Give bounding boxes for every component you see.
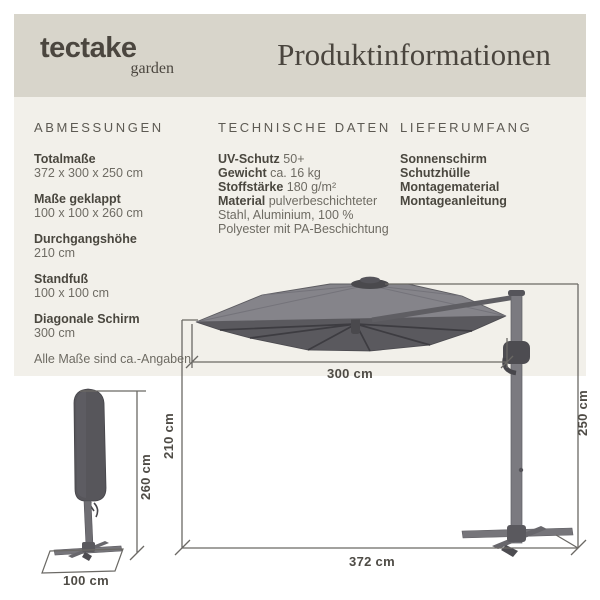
umbrella-base — [462, 525, 573, 557]
spec-value: 180 g/m² — [287, 180, 336, 194]
brand-logo: tectake garden — [40, 34, 174, 77]
spec-line: Material pulverbeschichteter Stahl, Alum… — [218, 194, 398, 236]
column-abmessungen: ABMESSUNGEN Totalmaße 372 x 300 x 250 cm… — [34, 121, 204, 366]
dimension-item: Durchgangshöhe 210 cm — [34, 232, 204, 260]
abmessungen-title: ABMESSUNGEN — [34, 121, 204, 135]
dimension-base-width: 100 cm — [63, 573, 109, 588]
technische-daten-title: TECHNISCHE DATEN — [218, 121, 398, 135]
pack-item: Sonnenschirm — [400, 152, 570, 166]
spec-line: UV-Schutz 50+ — [218, 152, 398, 166]
base-footprint-outline — [42, 549, 123, 573]
item-label: Maße geklappt — [34, 192, 204, 206]
lieferumfang-title: LIEFERUMFANG — [400, 121, 570, 135]
item-value: 100 x 100 x 260 cm — [34, 206, 204, 220]
item-label: Totalmaße — [34, 152, 204, 166]
spec-label: Stoffstärke — [218, 180, 283, 194]
item-value: 372 x 300 x 250 cm — [34, 166, 204, 180]
dimension-item: Maße geklappt 100 x 100 x 260 cm — [34, 192, 204, 220]
item-value: 100 x 100 cm — [34, 286, 204, 300]
dimension-total-width: 372 cm — [349, 554, 395, 569]
spec-label: Gewicht — [218, 166, 267, 180]
page-title: Produktinformationen — [239, 38, 589, 72]
product-info-page: tectake garden Produktinformationen — [0, 0, 600, 600]
header-band: tectake garden Produktinformationen — [14, 14, 586, 97]
item-label: Standfuß — [34, 272, 204, 286]
item-value: 210 cm — [34, 246, 204, 260]
dimension-item: Diagonale Schirm 300 cm — [34, 312, 204, 340]
dimension-item: Totalmaße 372 x 300 x 250 cm — [34, 152, 204, 180]
spec-line: Gewicht ca. 16 kg — [218, 166, 398, 180]
pack-item: Montageanleitung — [400, 194, 570, 208]
pack-item: Montagematerial — [400, 180, 570, 194]
dimension-folded-height: 260 cm — [138, 454, 153, 500]
spec-value: ca. 16 kg — [270, 166, 321, 180]
dimension-passage-height: 210 cm — [161, 413, 176, 459]
brand-name: tectake — [40, 34, 174, 63]
folded-umbrella — [42, 389, 123, 573]
dimension-item: Standfuß 100 x 100 cm — [34, 272, 204, 300]
item-value: 300 cm — [34, 326, 204, 340]
item-label: Diagonale Schirm — [34, 312, 204, 326]
approx-note: Alle Maße sind ca.-Angaben — [34, 352, 204, 366]
spec-value: 50+ — [283, 152, 304, 166]
spec-label: UV-Schutz — [218, 152, 280, 166]
column-lieferumfang: LIEFERUMFANG Sonnenschirm Schutzhülle Mo… — [400, 121, 570, 208]
dimension-total-height: 250 cm — [575, 390, 590, 436]
item-label: Durchgangshöhe — [34, 232, 204, 246]
spec-line: Stoffstärke 180 g/m² — [218, 180, 398, 194]
pack-item: Schutzhülle — [400, 166, 570, 180]
spec-label: Material — [218, 194, 265, 208]
column-technische-daten: TECHNISCHE DATEN UV-Schutz 50+ Gewicht c… — [218, 121, 398, 236]
